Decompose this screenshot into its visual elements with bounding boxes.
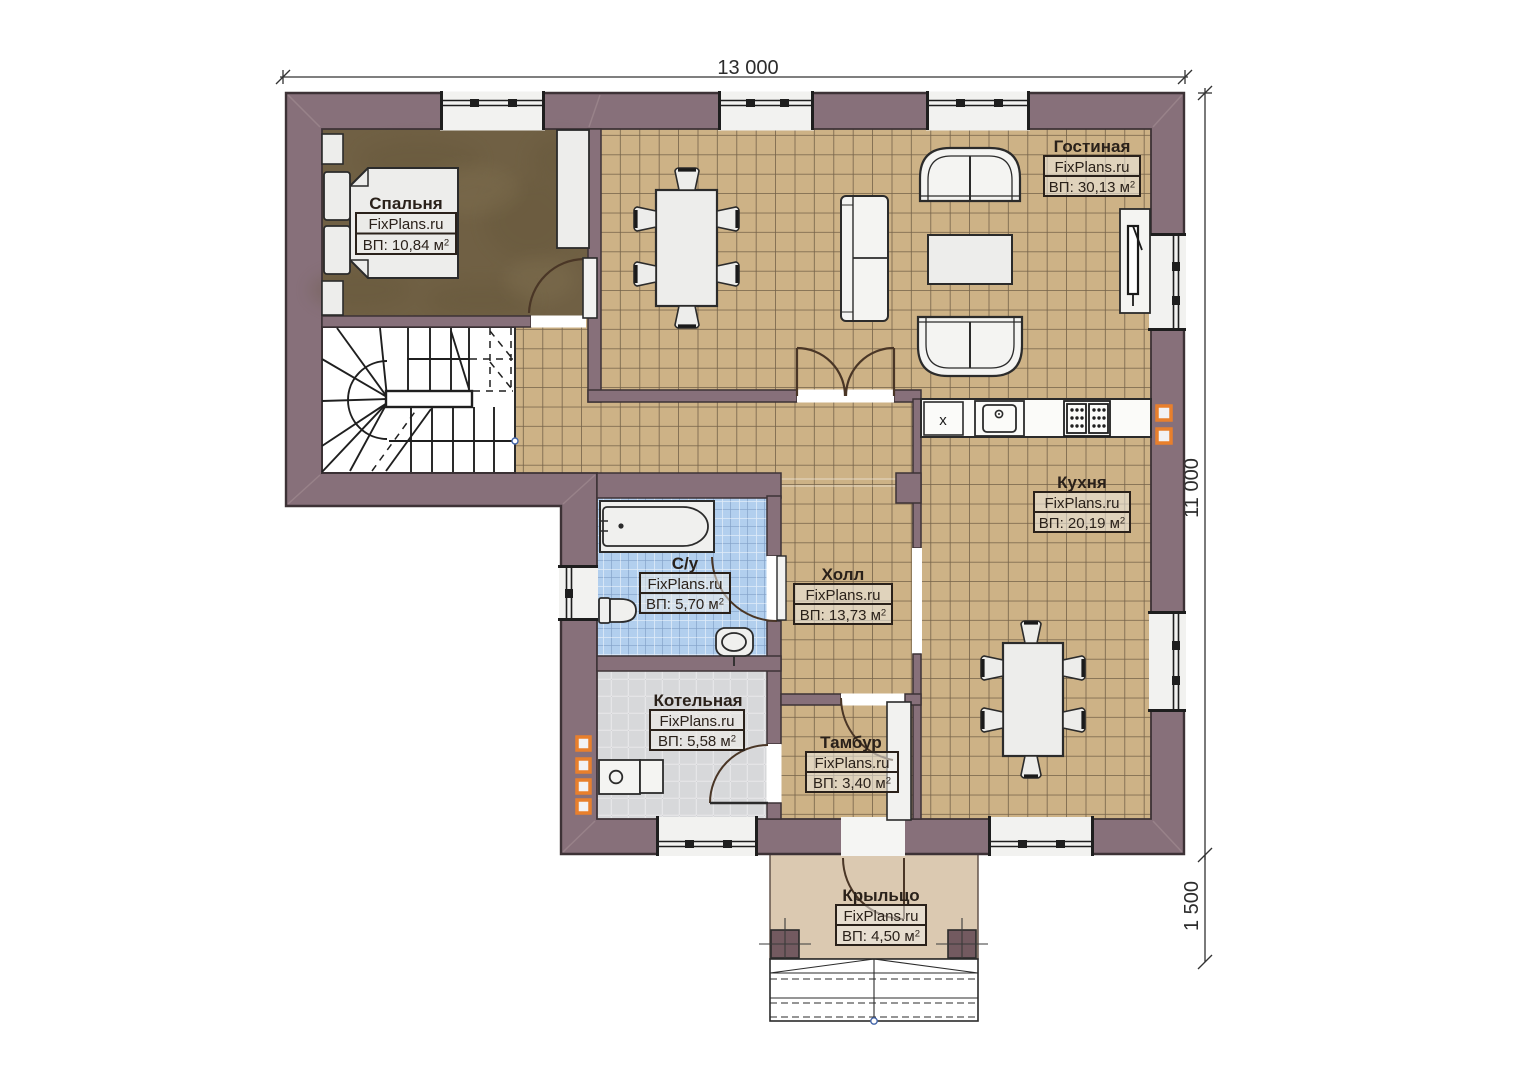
svg-text:FixPlans.ru: FixPlans.ru [1044, 495, 1119, 512]
svg-text:Спальня: Спальня [369, 194, 442, 213]
svg-text:ВП: 4,50 м2: ВП: 4,50 м2 [842, 928, 920, 945]
svg-text:FixPlans.ru: FixPlans.ru [647, 576, 722, 593]
svg-text:x: x [939, 412, 947, 429]
svg-text:ВП: 3,40 м2: ВП: 3,40 м2 [813, 775, 891, 792]
svg-text:FixPlans.ru: FixPlans.ru [1054, 159, 1129, 176]
svg-text:13 000: 13 000 [717, 57, 778, 79]
svg-text:С/у: С/у [672, 554, 699, 573]
svg-text:Тамбур: Тамбур [820, 733, 882, 752]
svg-text:Крыльцо: Крыльцо [842, 886, 919, 905]
svg-text:ВП: 30,13 м2: ВП: 30,13 м2 [1049, 179, 1135, 196]
svg-text:FixPlans.ru: FixPlans.ru [805, 587, 880, 604]
svg-text:ВП: 10,84 м2: ВП: 10,84 м2 [363, 237, 449, 254]
svg-text:ВП: 13,73 м2: ВП: 13,73 м2 [800, 607, 886, 624]
svg-text:ВП: 5,70 м2: ВП: 5,70 м2 [646, 596, 724, 613]
svg-text:FixPlans.ru: FixPlans.ru [368, 216, 443, 233]
svg-text:Холл: Холл [822, 565, 865, 584]
svg-text:ВП: 20,19 м2: ВП: 20,19 м2 [1039, 515, 1125, 532]
svg-text:Кухня: Кухня [1057, 473, 1107, 492]
svg-text:Котельная: Котельная [653, 691, 742, 710]
svg-text:ВП: 5,58 м2: ВП: 5,58 м2 [658, 733, 736, 750]
svg-text:Гостиная: Гостиная [1054, 137, 1131, 156]
svg-text:FixPlans.ru: FixPlans.ru [843, 908, 918, 925]
svg-text:FixPlans.ru: FixPlans.ru [659, 713, 734, 730]
svg-text:1 500: 1 500 [1181, 881, 1203, 931]
svg-text:FixPlans.ru: FixPlans.ru [814, 755, 889, 772]
